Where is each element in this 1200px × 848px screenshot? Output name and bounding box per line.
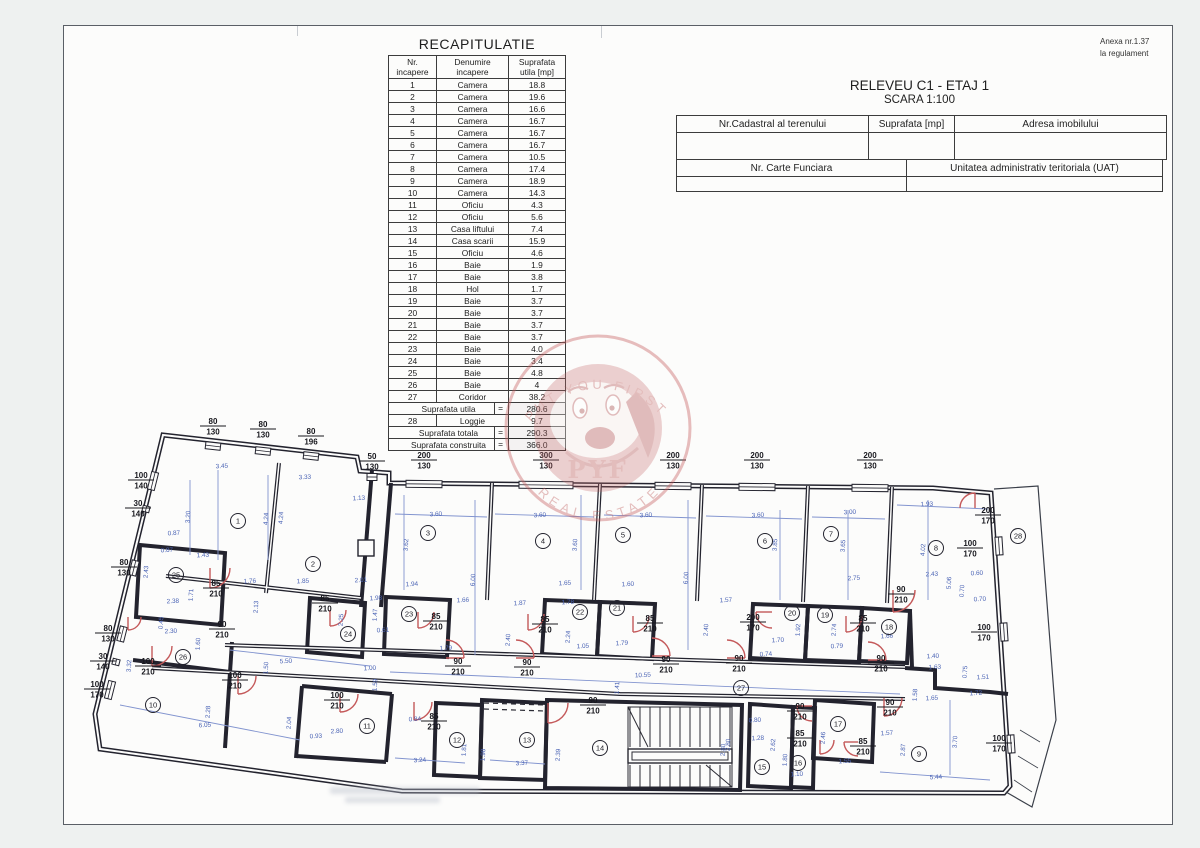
dimension-label: 0.70 <box>974 596 987 604</box>
dimension-label: 3.62 <box>403 538 411 551</box>
size-label: 80130 <box>250 420 276 440</box>
dimension-label: 2.62 <box>770 738 778 751</box>
dimension-label: 3.60 <box>430 511 443 519</box>
dimension-label: 1.57 <box>720 597 733 605</box>
svg-text:22: 22 <box>576 608 584 617</box>
dimension-label: 2.01 <box>355 577 368 585</box>
svg-text:100: 100 <box>141 657 155 666</box>
svg-text:14: 14 <box>596 744 604 753</box>
dimension-label: 2.74 <box>831 623 839 636</box>
svg-text:85: 85 <box>321 594 330 603</box>
dimension-label: 3.24 <box>414 757 427 765</box>
dimension-label: 1.63 <box>929 664 942 672</box>
window <box>205 442 221 451</box>
svg-text:210: 210 <box>856 748 870 757</box>
svg-text:130: 130 <box>863 462 877 471</box>
dimension-label: 1.72 <box>970 690 983 698</box>
dimension-label: 3.65 <box>840 539 848 552</box>
svg-text:25: 25 <box>172 571 180 580</box>
size-label: 80130 <box>200 417 226 437</box>
room-number-circle: 2 <box>306 557 321 572</box>
size-label: 200130 <box>411 451 437 471</box>
svg-text:50: 50 <box>368 452 377 461</box>
svg-text:130: 130 <box>750 462 764 471</box>
svg-text:170: 170 <box>963 550 977 559</box>
size-label: 90210 <box>888 585 914 605</box>
svg-text:5: 5 <box>621 531 625 540</box>
svg-text:100: 100 <box>963 539 977 548</box>
dimension-label: 0.80 <box>749 717 762 725</box>
svg-text:140: 140 <box>96 663 110 672</box>
svg-text:130: 130 <box>417 462 431 471</box>
svg-text:210: 210 <box>793 713 807 722</box>
window <box>147 471 158 490</box>
dimension-label: 1.78 <box>562 599 575 607</box>
svg-text:210: 210 <box>520 669 534 678</box>
size-label: 50130 <box>359 452 385 472</box>
dimension-label: 3.60 <box>534 512 547 520</box>
window <box>303 452 319 461</box>
svg-text:210: 210 <box>586 707 600 716</box>
room-number-circle: 9 <box>912 747 927 762</box>
dimension-label: 1.65 <box>926 695 939 703</box>
svg-text:196: 196 <box>304 438 318 447</box>
svg-text:85: 85 <box>646 614 655 623</box>
dimension-label: 3.37 <box>516 760 529 768</box>
dimension-label: 5.06 <box>946 576 954 589</box>
dimension-label: 5.50 <box>280 658 293 666</box>
dimension-label: 1.70 <box>772 637 785 645</box>
window <box>852 484 888 491</box>
room-number-circle: 7 <box>824 527 839 542</box>
svg-text:15: 15 <box>758 763 766 772</box>
dimension-label: 1.59 <box>372 678 380 691</box>
svg-text:90: 90 <box>454 657 463 666</box>
room-number-circle: 14 <box>593 741 608 756</box>
room-number-circle: 20 <box>785 606 800 621</box>
room-number-circle: 24 <box>341 627 356 642</box>
svg-text:90: 90 <box>886 698 895 707</box>
dimension-label: 4.02 <box>920 543 928 556</box>
svg-text:100: 100 <box>992 734 1006 743</box>
dimension-label: 1.85 <box>297 578 310 586</box>
dimension-label: 3.60 <box>752 512 765 520</box>
door-swing <box>960 493 975 508</box>
svg-text:100: 100 <box>330 691 344 700</box>
svg-text:85: 85 <box>541 615 550 624</box>
dimension-label: 1.98 <box>370 595 383 603</box>
dimension-label: 1.80 <box>782 753 790 766</box>
svg-text:200: 200 <box>417 451 431 460</box>
dimension-label: 1.40 <box>927 653 940 661</box>
window <box>112 658 120 666</box>
svg-text:210: 210 <box>215 631 229 640</box>
size-label: 80196 <box>298 427 324 447</box>
dimension-label: 2.80 <box>331 728 344 736</box>
svg-text:170: 170 <box>977 634 991 643</box>
svg-text:210: 210 <box>894 596 908 605</box>
room-number-circle: 27 <box>734 681 749 696</box>
dimension-label: 1.43 <box>197 552 210 560</box>
size-label: 100170 <box>971 623 997 643</box>
dimension-label: 2.24 <box>565 630 573 643</box>
window <box>1000 623 1008 641</box>
size-label: 90210 <box>514 658 540 678</box>
dimension-label: 2.39 <box>555 748 563 761</box>
svg-text:4: 4 <box>541 537 545 546</box>
svg-text:130: 130 <box>117 569 131 578</box>
dimension-label: 2.28 <box>205 705 213 718</box>
svg-text:100: 100 <box>977 623 991 632</box>
room-number-circle: 12 <box>450 733 465 748</box>
svg-text:7: 7 <box>829 530 833 539</box>
svg-text:210: 210 <box>209 590 223 599</box>
dimension-label: 3.32 <box>126 659 134 672</box>
svg-text:210: 210 <box>874 665 888 674</box>
svg-text:9: 9 <box>917 750 921 759</box>
svg-text:16: 16 <box>794 759 802 768</box>
dimension-label: 3.00 <box>844 509 857 517</box>
svg-text:90: 90 <box>796 702 805 711</box>
dimension-label: 5.44 <box>930 774 943 782</box>
svg-text:8: 8 <box>934 544 938 553</box>
svg-text:17: 17 <box>834 720 842 729</box>
dimension-label: 1.13 <box>353 495 366 503</box>
floor-plan: 3.453.331.133.204.244.240.870.871.431.76… <box>0 0 1200 848</box>
svg-text:210: 210 <box>330 702 344 711</box>
dimension-label: 2.87 <box>900 743 908 756</box>
dimension-label: 1.10 <box>791 771 804 779</box>
svg-text:140: 140 <box>134 482 148 491</box>
dimension-label: 0.75 <box>962 665 970 678</box>
svg-text:90: 90 <box>218 620 227 629</box>
faded-stamp <box>345 797 440 803</box>
dimension-label: 1.50 <box>263 661 271 674</box>
dimension-label: 3.70 <box>952 735 960 748</box>
svg-text:26: 26 <box>179 653 187 662</box>
svg-text:90: 90 <box>877 654 886 663</box>
size-label: 200170 <box>740 613 766 633</box>
dimension-label: 1.76 <box>244 578 257 586</box>
dimension-label: 1.57 <box>881 730 894 738</box>
size-label: 100170 <box>957 539 983 559</box>
dimension-label: 2.43 <box>143 565 151 578</box>
dimension-label: 2.75 <box>848 575 861 583</box>
dimension-label: 1.58 <box>912 688 920 701</box>
svg-text:100: 100 <box>134 471 148 480</box>
svg-text:24: 24 <box>344 630 352 639</box>
room-number-circle: 3 <box>421 526 436 541</box>
svg-text:90: 90 <box>589 696 598 705</box>
dimension-label: 1.00 <box>364 665 377 673</box>
svg-text:30: 30 <box>134 499 143 508</box>
dimension-label: 1.71 <box>188 588 196 601</box>
dimension-label: 2.46 <box>820 731 828 744</box>
size-label: 200130 <box>744 451 770 471</box>
svg-text:130: 130 <box>256 431 270 440</box>
door-swing <box>548 703 568 723</box>
window <box>255 447 271 456</box>
svg-text:10: 10 <box>149 701 157 710</box>
svg-text:100: 100 <box>90 680 104 689</box>
svg-text:210: 210 <box>451 668 465 677</box>
svg-text:19: 19 <box>821 611 829 620</box>
dimension-label: 2.30 <box>165 628 178 636</box>
room-number-circle: 4 <box>536 534 551 549</box>
svg-text:210: 210 <box>228 682 242 691</box>
svg-text:85: 85 <box>212 579 221 588</box>
size-label: 90210 <box>580 696 606 716</box>
window <box>406 480 442 487</box>
dimension-label: 2.40 <box>703 623 711 636</box>
dimension-label: 2.40 <box>505 633 513 646</box>
svg-text:80: 80 <box>209 417 218 426</box>
svg-text:3: 3 <box>426 529 430 538</box>
dimension-label: 1.94 <box>406 581 419 589</box>
faded-stamp <box>330 787 480 794</box>
svg-text:80: 80 <box>259 420 268 429</box>
svg-text:210: 210 <box>643 625 657 634</box>
svg-text:90: 90 <box>735 654 744 663</box>
dimension-label: 0.60 <box>971 570 984 578</box>
dimension-label: 0.79 <box>831 643 844 651</box>
dimension-label: 0.87 <box>168 530 181 538</box>
dimension-label: 3.60 <box>572 538 580 551</box>
room-number-circle: 23 <box>402 607 417 622</box>
svg-text:80: 80 <box>104 624 113 633</box>
dimension-label: 4.24 <box>278 511 286 524</box>
dimension-label: 1.47 <box>372 608 380 621</box>
dimension-label: 1.93 <box>921 501 934 509</box>
dimension-label: 1.41 <box>614 681 622 694</box>
dimension-label: 1.98 <box>480 748 488 761</box>
size-label: 200130 <box>857 451 883 471</box>
svg-text:170: 170 <box>746 624 760 633</box>
svg-text:170: 170 <box>992 745 1006 754</box>
svg-text:1: 1 <box>236 517 240 526</box>
watermark-mid-text: PYF <box>567 455 628 484</box>
svg-text:210: 210 <box>732 665 746 674</box>
room-number-circle: 17 <box>831 717 846 732</box>
svg-text:2: 2 <box>311 560 315 569</box>
svg-text:80: 80 <box>307 427 316 436</box>
windows <box>104 442 1015 754</box>
room-number-circle: 21 <box>610 601 625 616</box>
svg-text:140: 140 <box>131 510 145 519</box>
room-number-circle: 1 <box>231 514 246 529</box>
dimension-label: 1.55 <box>839 758 852 766</box>
size-label: 90210 <box>445 657 471 677</box>
svg-text:170: 170 <box>90 691 104 700</box>
dimension-label: 1.79 <box>616 640 629 648</box>
dimension-label: 1.60 <box>622 581 635 589</box>
svg-text:90: 90 <box>897 585 906 594</box>
svg-text:200: 200 <box>666 451 680 460</box>
dog-nose-icon <box>585 427 615 449</box>
window <box>995 537 1003 555</box>
dimension-label: 0.70 <box>959 584 967 597</box>
svg-text:27: 27 <box>737 684 745 693</box>
svg-text:210: 210 <box>141 668 155 677</box>
dimension-label: 0.93 <box>310 733 323 741</box>
svg-text:85: 85 <box>430 712 439 721</box>
dimension-label: 3.20 <box>185 510 193 523</box>
svg-text:210: 210 <box>883 709 897 718</box>
room-number-circle: 22 <box>573 605 588 620</box>
svg-text:200: 200 <box>863 451 877 460</box>
room-number-circle: 11 <box>360 719 375 734</box>
room-number-circle: 13 <box>520 733 535 748</box>
room-number-circle: 6 <box>758 534 773 549</box>
dimension-label: 1.05 <box>577 643 590 651</box>
dimension-label: 1.79 <box>440 645 453 653</box>
room-number-circle: 19 <box>818 608 833 623</box>
svg-text:85: 85 <box>432 612 441 621</box>
dimension-label: 2.38 <box>167 598 180 606</box>
svg-text:210: 210 <box>538 626 552 635</box>
window <box>367 473 377 480</box>
dimension-label: 2.04 <box>286 716 294 729</box>
svg-text:210: 210 <box>856 625 870 634</box>
dimension-label: 1.92 <box>795 623 803 636</box>
svg-text:130: 130 <box>666 462 680 471</box>
svg-text:20: 20 <box>788 609 796 618</box>
svg-text:21: 21 <box>613 604 621 613</box>
svg-text:6: 6 <box>763 537 767 546</box>
svg-text:13: 13 <box>523 736 531 745</box>
dimension-label: 1.87 <box>514 600 527 608</box>
size-label: 100210 <box>324 691 350 711</box>
svg-text:85: 85 <box>859 737 868 746</box>
svg-text:210: 210 <box>793 740 807 749</box>
svg-text:23: 23 <box>405 610 413 619</box>
dimension-label: 10.55 <box>635 672 652 680</box>
room-number-circle: 8 <box>929 541 944 556</box>
dimension-label: 0.45 <box>158 616 166 629</box>
svg-text:130: 130 <box>365 463 379 472</box>
dimension-label: 2.80 <box>725 738 733 751</box>
dimension-label: 2.13 <box>253 600 261 613</box>
size-label: 85210 <box>421 712 447 732</box>
dimension-label: 2.43 <box>926 571 939 579</box>
dimension-label: 1.60 <box>195 637 203 650</box>
dimension-label: 6.00 <box>470 573 478 586</box>
dimension-label: 0.74 <box>760 651 773 659</box>
svg-text:200: 200 <box>750 451 764 460</box>
svg-text:30: 30 <box>99 652 108 661</box>
dimension-label: 1.65 <box>559 580 572 588</box>
room-number-circle: 15 <box>755 760 770 775</box>
svg-text:200: 200 <box>981 506 995 515</box>
dimension-label: 4.24 <box>263 512 271 525</box>
window <box>1007 735 1015 753</box>
dimension-label: 0.87 <box>161 547 174 555</box>
svg-text:11: 11 <box>363 722 371 731</box>
svg-text:28: 28 <box>1014 532 1022 541</box>
svg-text:90: 90 <box>523 658 532 667</box>
scanned-cadastral-sheet: { "anexa": {"line1": "Anexa nr.1.37", "l… <box>0 0 1200 848</box>
dimension-label: 0.61 <box>377 627 390 635</box>
dimension-label: 1.66 <box>457 597 470 605</box>
window <box>104 680 115 699</box>
dimension-label: 3.60 <box>640 512 653 520</box>
svg-text:80: 80 <box>120 558 129 567</box>
svg-text:210: 210 <box>659 666 673 675</box>
svg-text:85: 85 <box>859 614 868 623</box>
window <box>739 483 775 490</box>
dimension-label: 1.51 <box>977 674 990 682</box>
svg-text:100: 100 <box>228 671 242 680</box>
dimension-label: 6.05 <box>199 722 212 730</box>
svg-text:210: 210 <box>318 605 332 614</box>
svg-text:210: 210 <box>429 623 443 632</box>
svg-text:85: 85 <box>796 729 805 738</box>
staircase <box>628 707 732 787</box>
dimension-label: 6.00 <box>683 571 691 584</box>
size-label: 85210 <box>423 612 449 632</box>
svg-text:12: 12 <box>453 736 461 745</box>
dimension-label: 3.33 <box>299 474 312 482</box>
room-number-circle: 26 <box>176 650 191 665</box>
svg-text:130: 130 <box>101 635 115 644</box>
dimension-label: 2.25 <box>338 613 346 626</box>
shaft-notch <box>358 540 374 556</box>
svg-text:130: 130 <box>206 428 220 437</box>
dimension-label: 1.28 <box>752 735 765 743</box>
room-number-circle: 28 <box>1011 529 1026 544</box>
svg-text:90: 90 <box>662 655 671 664</box>
svg-text:200: 200 <box>746 613 760 622</box>
svg-text:170: 170 <box>981 517 995 526</box>
svg-text:210: 210 <box>427 723 441 732</box>
room-number-circle: 10 <box>146 698 161 713</box>
dimension-label: 3.45 <box>216 463 229 471</box>
size-label: 85210 <box>532 615 558 635</box>
dimension-label: 0.84 <box>409 716 422 724</box>
room-number-circle: 5 <box>616 528 631 543</box>
svg-text:18: 18 <box>885 623 893 632</box>
